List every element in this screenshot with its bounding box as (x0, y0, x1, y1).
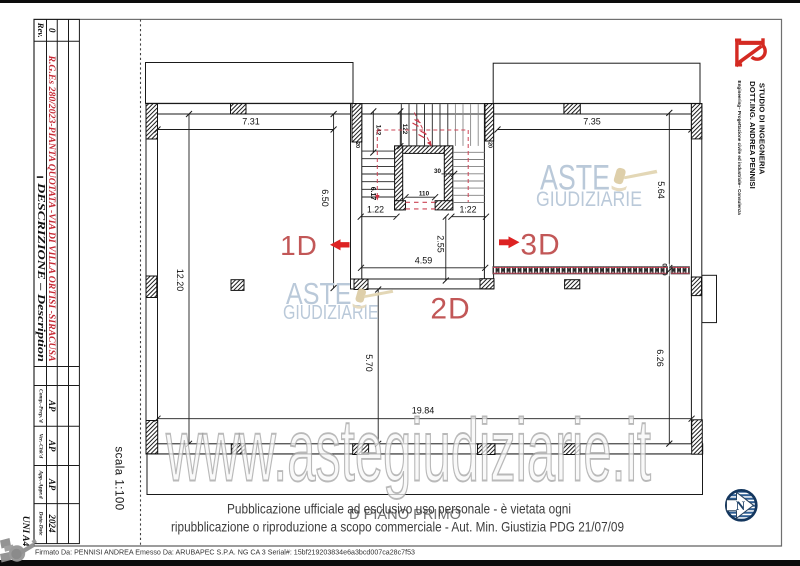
svg-text:scala 1:100: scala 1:100 (113, 446, 125, 510)
svg-text:110: 110 (419, 191, 430, 198)
svg-text:STUDIO DI INGEGNERIA: STUDIO DI INGEGNERIA (757, 83, 766, 175)
svg-text:2.55: 2.55 (436, 235, 446, 253)
svg-text:2024: 2024 (47, 514, 57, 534)
svg-text:4.59: 4.59 (415, 256, 433, 266)
svg-text:N: N (736, 498, 746, 513)
svg-text:5.70: 5.70 (364, 354, 374, 372)
svg-text:AP: AP (47, 439, 57, 452)
svg-text:App.-Appr.d: App.-Appr.d (38, 470, 44, 499)
svg-text:AP: AP (47, 399, 57, 412)
svg-text:6.50: 6.50 (320, 189, 330, 207)
svg-text:GIUDIZIARIE: GIUDIZIARIE (536, 188, 642, 211)
svg-text:2D: 2D (430, 293, 470, 326)
svg-text:20: 20 (354, 142, 360, 148)
svg-text:20: 20 (486, 142, 492, 148)
svg-text:12.20: 12.20 (175, 269, 185, 292)
svg-text:1:22: 1:22 (459, 205, 476, 215)
svg-text:5.64: 5.64 (656, 181, 666, 199)
svg-text:6.26: 6.26 (655, 349, 665, 367)
svg-text:www.astegiudiziarie.it: www.astegiudiziarie.it (165, 401, 651, 500)
svg-text:Ver.-Chk'd: Ver.-Chk'd (38, 433, 44, 458)
svg-text:ripubblicazione o riproduzione: ripubblicazione o riproduzione a scopo c… (171, 519, 624, 535)
svg-text:DESCRIZIONE – Description: DESCRIZIONE – Description (35, 182, 46, 363)
svg-text:0: 0 (47, 28, 57, 33)
svg-text:Engineering– Progettazione civ: Engineering– Progettazione civile ed ind… (737, 81, 742, 216)
svg-text:6.17: 6.17 (369, 187, 376, 201)
svg-text:DOTT.ING. ANDREA PENNISI: DOTT.ING. ANDREA PENNISI (748, 81, 757, 189)
svg-text:3D: 3D (520, 229, 560, 262)
svg-text:7.31: 7.31 (242, 117, 260, 127)
svg-text:AP: AP (47, 478, 57, 491)
svg-text:1D: 1D (280, 230, 318, 261)
svg-text:7.35: 7.35 (583, 117, 601, 127)
svg-text:122: 122 (401, 124, 408, 135)
svg-text:Rev.: Rev. (36, 22, 46, 38)
svg-text:UNI A4: UNI A4 (20, 516, 30, 547)
svg-text:Firmato Da: PENNISI ANDREA Eme: Firmato Da: PENNISI ANDREA Emesso Da: AR… (35, 550, 415, 557)
svg-text:30: 30 (434, 168, 442, 175)
svg-text:Comp.-Prep.'d: Comp.-Prep.'d (38, 389, 44, 423)
svg-text:Pubblicazione ufficiale ad esc: Pubblicazione ufficiale ad esclusivo uso… (227, 501, 571, 517)
svg-text:Data-Date: Data-Date (38, 511, 44, 536)
svg-text:1.22: 1.22 (367, 205, 384, 215)
svg-text:R.G.Es 280/2023-PIANTA QUOTATA: R.G.Es 280/2023-PIANTA QUOTATA -VIA DI V… (47, 54, 57, 361)
